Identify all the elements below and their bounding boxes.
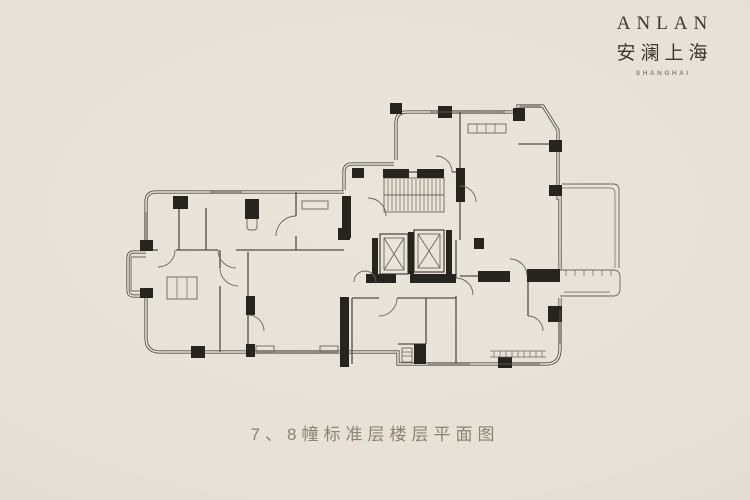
structural-columns	[140, 103, 562, 368]
brand-name-cn: 安澜上海	[610, 38, 719, 65]
windows	[146, 106, 560, 364]
elevator-2	[414, 230, 444, 272]
elevator-1	[380, 234, 408, 274]
brand-logo: ANLAN 安澜上海 SHANGHAI	[610, 13, 714, 77]
interior-walls	[146, 112, 558, 364]
floor-plan	[128, 103, 620, 368]
door-arcs	[158, 156, 543, 331]
staircase	[384, 178, 444, 212]
terrace-outline	[562, 184, 619, 268]
brand-name-sub: SHANGHAI	[610, 70, 717, 77]
poster: ANLAN 安澜上海 SHANGHAI 7、8幢标准层楼层平面图	[0, 0, 750, 500]
brand-name-en: ANLAN	[610, 13, 720, 35]
right-balcony	[560, 270, 620, 296]
bay-window	[131, 257, 146, 291]
fixtures	[167, 124, 506, 362]
plan-caption: 7、8幢标准层楼层平面图	[0, 420, 750, 445]
